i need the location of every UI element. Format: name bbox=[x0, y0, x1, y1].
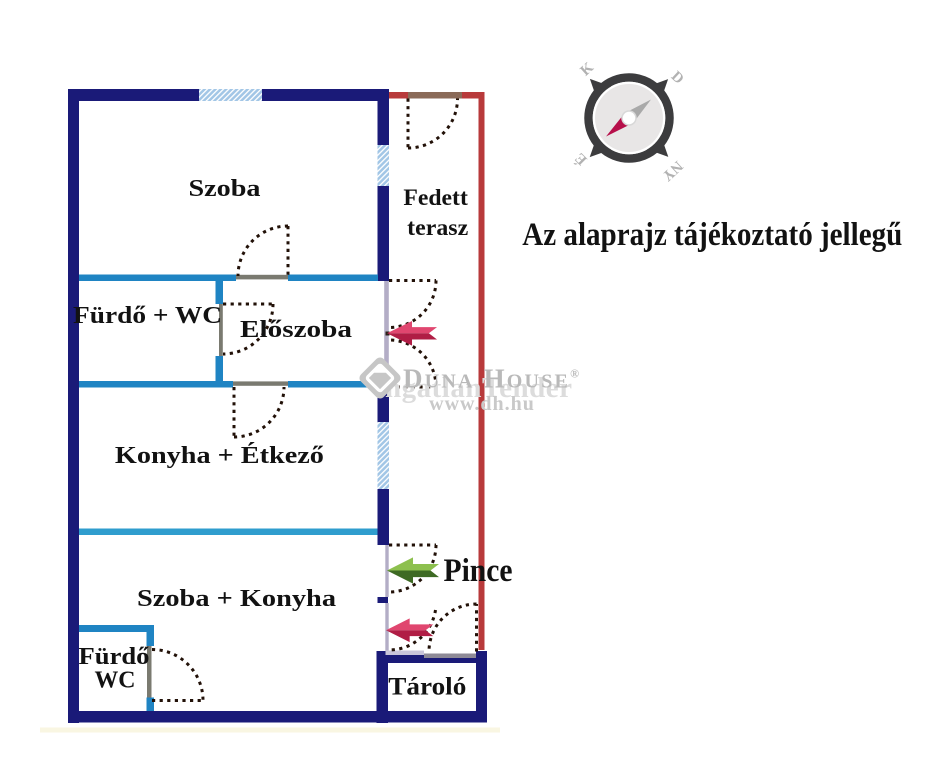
svg-text:WC: WC bbox=[95, 668, 136, 694]
svg-text:Az alaprajz tájékoztató jelleg: Az alaprajz tájékoztató jellegű bbox=[522, 217, 902, 253]
svg-text:Fürdő: Fürdő bbox=[79, 644, 150, 670]
svg-text:Tároló: Tároló bbox=[388, 674, 466, 701]
svg-text:terasz: terasz bbox=[407, 215, 468, 240]
svg-text:Konyha + Étkező: Konyha + Étkező bbox=[115, 443, 324, 469]
svg-text:www.dh.hu: www.dh.hu bbox=[429, 393, 535, 415]
svg-text:Pince: Pince bbox=[444, 553, 513, 589]
svg-text:Szoba + Konyha: Szoba + Konyha bbox=[137, 586, 336, 612]
svg-text:Fedett: Fedett bbox=[403, 185, 468, 210]
svg-text:Előszoba: Előszoba bbox=[240, 317, 352, 343]
svg-text:Szoba: Szoba bbox=[189, 176, 261, 202]
svg-text:Fürdő + WC: Fürdő + WC bbox=[73, 303, 222, 329]
